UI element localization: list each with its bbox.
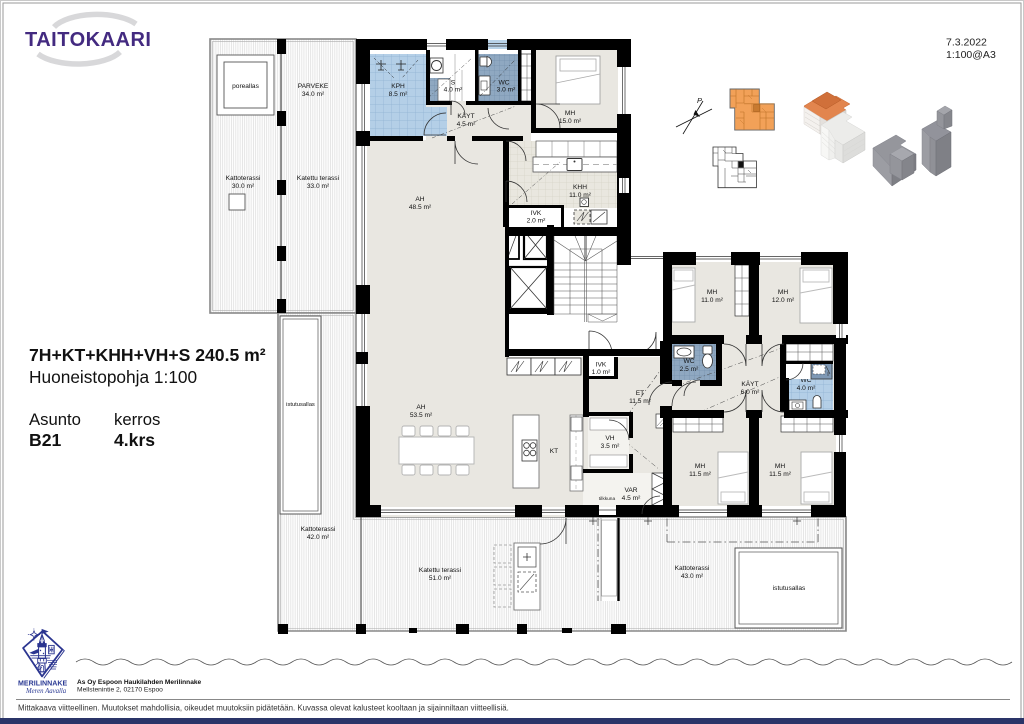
svg-text:2.5 m²: 2.5 m² xyxy=(680,366,699,373)
svg-text:43.0 m²: 43.0 m² xyxy=(681,573,704,580)
svg-text:33.0 m²: 33.0 m² xyxy=(307,183,330,190)
svg-text:53.5 m²: 53.5 m² xyxy=(410,412,433,419)
svg-text:48.5 m²: 48.5 m² xyxy=(409,204,432,211)
svg-text:Kattoterassi: Kattoterassi xyxy=(675,565,710,572)
svg-text:30.0 m²: 30.0 m² xyxy=(232,183,255,190)
svg-text:IVK: IVK xyxy=(531,210,542,217)
svg-text:istutusallas: istutusallas xyxy=(773,585,806,592)
svg-text:Kattoterassi: Kattoterassi xyxy=(301,526,336,533)
svg-text:istutusallas: istutusallas xyxy=(286,402,315,408)
svg-text:4.krs: 4.krs xyxy=(114,430,155,450)
svg-text:AH: AH xyxy=(416,404,425,411)
svg-text:1:100@A3: 1:100@A3 xyxy=(946,49,996,61)
svg-text:PARVEKE: PARVEKE xyxy=(298,83,329,90)
svg-text:VH: VH xyxy=(605,435,614,442)
svg-text:2.0 m²: 2.0 m² xyxy=(527,218,546,225)
svg-text:S: S xyxy=(451,80,456,87)
svg-text:poreallas: poreallas xyxy=(232,83,259,90)
svg-text:11.5 m²: 11.5 m² xyxy=(769,471,792,478)
svg-text:MH: MH xyxy=(695,463,705,470)
svg-text:KPH: KPH xyxy=(391,83,405,90)
svg-text:Katettu terassi: Katettu terassi xyxy=(297,175,340,182)
svg-text:MERILINNAKE: MERILINNAKE xyxy=(18,680,68,688)
svg-text:tilkkuna: tilkkuna xyxy=(599,496,616,502)
svg-text:7.3.2022: 7.3.2022 xyxy=(946,37,987,49)
svg-text:6.0 m²: 6.0 m² xyxy=(741,389,760,396)
svg-text:4.0 m²: 4.0 m² xyxy=(444,87,463,94)
svg-text:Katettu terassi: Katettu terassi xyxy=(419,567,462,574)
svg-text:KHH: KHH xyxy=(573,184,587,191)
svg-text:51.0 m²: 51.0 m² xyxy=(429,575,452,582)
svg-text:TAITOKAARI: TAITOKAARI xyxy=(25,29,151,51)
svg-text:kerros: kerros xyxy=(114,410,160,429)
svg-text:Meren Aavalla: Meren Aavalla xyxy=(25,688,67,695)
svg-text:12.0 m²: 12.0 m² xyxy=(772,297,795,304)
svg-text:MH: MH xyxy=(565,110,575,117)
svg-text:B21: B21 xyxy=(29,430,61,450)
svg-text:34.0 m²: 34.0 m² xyxy=(302,91,325,98)
svg-text:MH: MH xyxy=(778,289,788,296)
svg-text:WC: WC xyxy=(684,358,695,365)
svg-text:11.0 m²: 11.0 m² xyxy=(701,297,724,304)
svg-text:Asunto: Asunto xyxy=(29,410,81,429)
svg-text:42.0 m²: 42.0 m² xyxy=(307,534,330,541)
svg-text:IVK: IVK xyxy=(596,362,607,369)
svg-text:11.5 m²: 11.5 m² xyxy=(629,398,652,405)
svg-text:3.0 m²: 3.0 m² xyxy=(497,87,516,94)
svg-text:KT: KT xyxy=(550,448,558,455)
svg-text:4.5 m²: 4.5 m² xyxy=(457,121,476,128)
svg-text:3.5 m²: 3.5 m² xyxy=(601,443,620,450)
svg-text:8.5 m²: 8.5 m² xyxy=(389,91,408,98)
svg-text:MH: MH xyxy=(775,463,785,470)
svg-text:Huoneistopohja 1:100: Huoneistopohja 1:100 xyxy=(29,367,197,387)
svg-text:Kattoterassi: Kattoterassi xyxy=(226,175,261,182)
svg-text:15.0 m²: 15.0 m² xyxy=(559,118,582,125)
svg-text:WC: WC xyxy=(499,80,510,87)
svg-text:4.5 m²: 4.5 m² xyxy=(622,495,641,502)
svg-text:AH: AH xyxy=(415,196,424,203)
svg-text:KÄYT: KÄYT xyxy=(741,380,758,388)
svg-text:Mellstenintie 2, 02170 Espoo: Mellstenintie 2, 02170 Espoo xyxy=(77,687,163,694)
svg-text:1.0 m²: 1.0 m² xyxy=(592,369,611,376)
svg-text:MH: MH xyxy=(707,289,717,296)
svg-text:7H+KT+KHH+VH+S 240.5 m²: 7H+KT+KHH+VH+S 240.5 m² xyxy=(29,345,266,365)
svg-text:VAR: VAR xyxy=(624,487,637,494)
svg-text:KÄYT: KÄYT xyxy=(457,112,474,120)
svg-text:11.5 m²: 11.5 m² xyxy=(689,471,712,478)
svg-text:4.0 m²: 4.0 m² xyxy=(797,385,816,392)
svg-text:Mittakaava viitteellinen. Muut: Mittakaava viitteellinen. Muutokset mahd… xyxy=(18,704,509,713)
svg-text:ET: ET xyxy=(636,390,644,397)
svg-text:P: P xyxy=(697,96,702,105)
svg-text:As Oy Espoon Haukilahden Meril: As Oy Espoon Haukilahden Merilinnake xyxy=(77,679,202,686)
